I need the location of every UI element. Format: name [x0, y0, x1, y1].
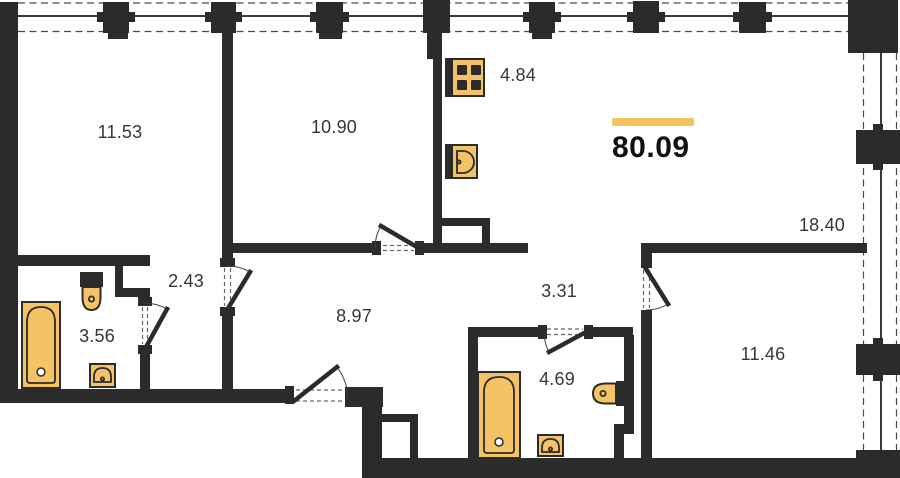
- door-room-top-middle: [375, 226, 417, 251]
- bathtub-icon: [478, 372, 520, 458]
- window-band-right: [864, 16, 897, 476]
- door-entrance: [294, 367, 348, 401]
- area-label-room-top-middle: 10.90: [299, 117, 369, 137]
- kitchen-sink-icon: [445, 144, 477, 179]
- bathtub-icon: [22, 302, 60, 388]
- area-label-hall-small: 3.31: [524, 281, 594, 301]
- area-label-kitchen-zone: 4.84: [483, 65, 553, 85]
- floor-plan: 11.53 10.90 4.84 18.40 2.43 3.56 8.97 3.…: [0, 0, 900, 478]
- total-area-accent-bar: [612, 118, 694, 126]
- vent-shaft-kitchen: [442, 218, 490, 244]
- floor-plan-drawing: [0, 0, 900, 478]
- area-label-hallway: 8.97: [319, 306, 389, 326]
- area-label-bedroom-top-left: 11.53: [85, 122, 155, 142]
- washbasin-icon: [90, 364, 115, 387]
- area-label-wardrobe-corridor: 2.43: [151, 271, 221, 291]
- area-label-bathroom-left: 3.56: [62, 326, 132, 346]
- door-wardrobe-hall: [225, 266, 251, 310]
- total-area-block: 80.09: [612, 118, 696, 165]
- area-label-living-zone: 18.40: [787, 215, 857, 235]
- washbasin-icon: [538, 435, 563, 456]
- toilet-icon: [80, 272, 103, 310]
- toilet-icon: [593, 381, 630, 406]
- total-area-value: 80.09: [612, 131, 696, 165]
- vent-shaft-entry: [382, 414, 418, 458]
- door-bedroom-right: [644, 269, 669, 310]
- area-label-bedroom-bottom-right: 11.46: [728, 344, 798, 364]
- door-bathroom-right: [544, 329, 586, 352]
- door-bathroom-left: [143, 303, 168, 349]
- stove-icon: [445, 58, 484, 97]
- area-label-bathroom-right: 4.69: [522, 369, 592, 389]
- interior-walls: [14, 32, 867, 458]
